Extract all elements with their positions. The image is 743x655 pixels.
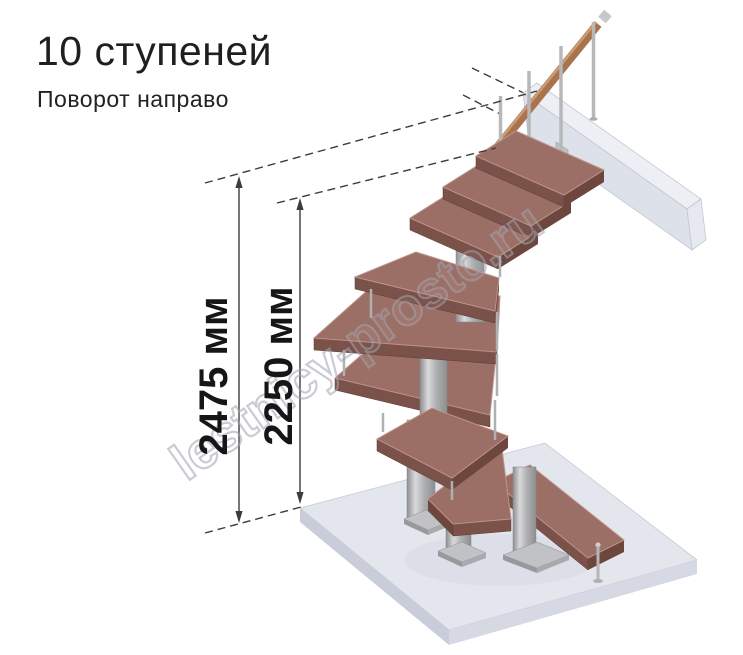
projection-lines-top: [463, 68, 530, 115]
dimension-label-to-top-step: 2250 мм: [256, 256, 302, 476]
staircase-drawing-page: lestnicy-prosto.ru 10 ступеней Поворот н…: [0, 0, 743, 655]
page-subtitle: Поворот направо: [37, 86, 229, 113]
dimension-label-total: 2475 мм: [191, 266, 237, 486]
page-title: 10 ступеней: [36, 28, 272, 75]
handrail-top-cap: [602, 13, 608, 20]
